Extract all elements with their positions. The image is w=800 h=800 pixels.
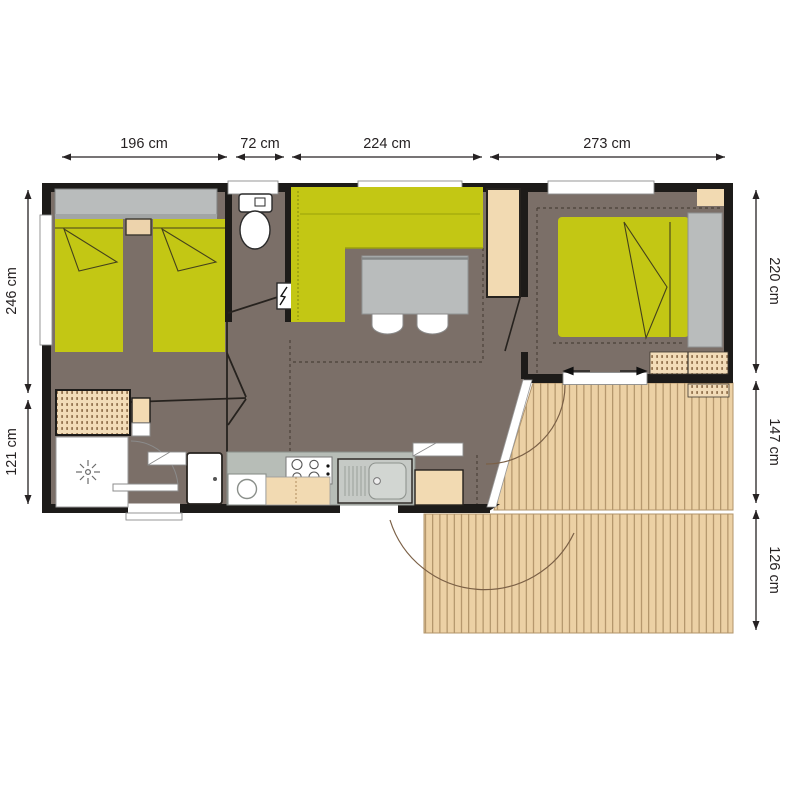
bunk-side-cabinet [132,398,150,423]
deck-upper [494,383,733,510]
dining-table [362,256,468,314]
doormat-inside [650,352,728,374]
wall-toilet-left [225,183,232,322]
washbasin-bowl [238,480,257,499]
twin-bed-2 [153,219,225,352]
window-bedroom [548,181,654,194]
door-gap-entrance [128,504,180,514]
bedroom-shelf [697,189,724,206]
window-left-wall [40,215,52,345]
floor-plan-canvas: 196 cm 72 cm 224 cm 273 cm 246 cm 121 cm… [0,0,800,800]
wall-bedroom-partition-lower [521,352,528,379]
toilet-bowl [240,211,270,249]
chair-1 [372,314,403,334]
entrance-step [126,513,182,520]
bunk-bed [56,390,130,435]
dim-right-147: 147 cm [766,418,782,466]
dim-right-220: 220 cm [766,257,782,305]
shower-room [56,437,128,507]
overhead-shelf-shadow [55,214,217,219]
twin-bed-1 [55,219,123,352]
fridge-handle [213,477,217,481]
chair-2 [417,314,448,334]
dim-top-72: 72 cm [240,136,280,152]
deck-lower [424,514,733,633]
sink-faucet [374,478,381,485]
entrance-door-leaf [113,484,178,491]
double-bed [558,217,689,337]
toilet-button [255,198,265,206]
dim-top-224: 224 cm [363,136,411,152]
kitchen-cabinet-beige [266,477,330,505]
headboard [688,213,722,347]
dim-left-121: 121 cm [4,428,20,476]
kitchen [148,443,463,505]
dim-top-273: 273 cm [583,136,631,152]
sliding-door-bedroom [563,373,647,385]
dim-left-246: 246 cm [4,267,20,315]
doormat-deck [688,384,729,397]
light-switch [277,283,292,309]
dim-top-196: 196 cm [120,136,168,152]
wall-bedroom-partition-upper [521,183,528,297]
window-toilet [228,181,278,194]
dim-right-126: 126 cm [766,546,782,594]
counter-flap-right [413,443,463,456]
bunk-side-step [132,423,150,436]
floor-plan-drawing: 196 cm 72 cm 224 cm 273 cm 246 cm 121 cm… [0,0,800,800]
living-wardrobe [487,189,520,297]
overhead-shelf [55,189,217,216]
nightstand [126,219,151,235]
kitchen-counter-right [415,470,463,505]
